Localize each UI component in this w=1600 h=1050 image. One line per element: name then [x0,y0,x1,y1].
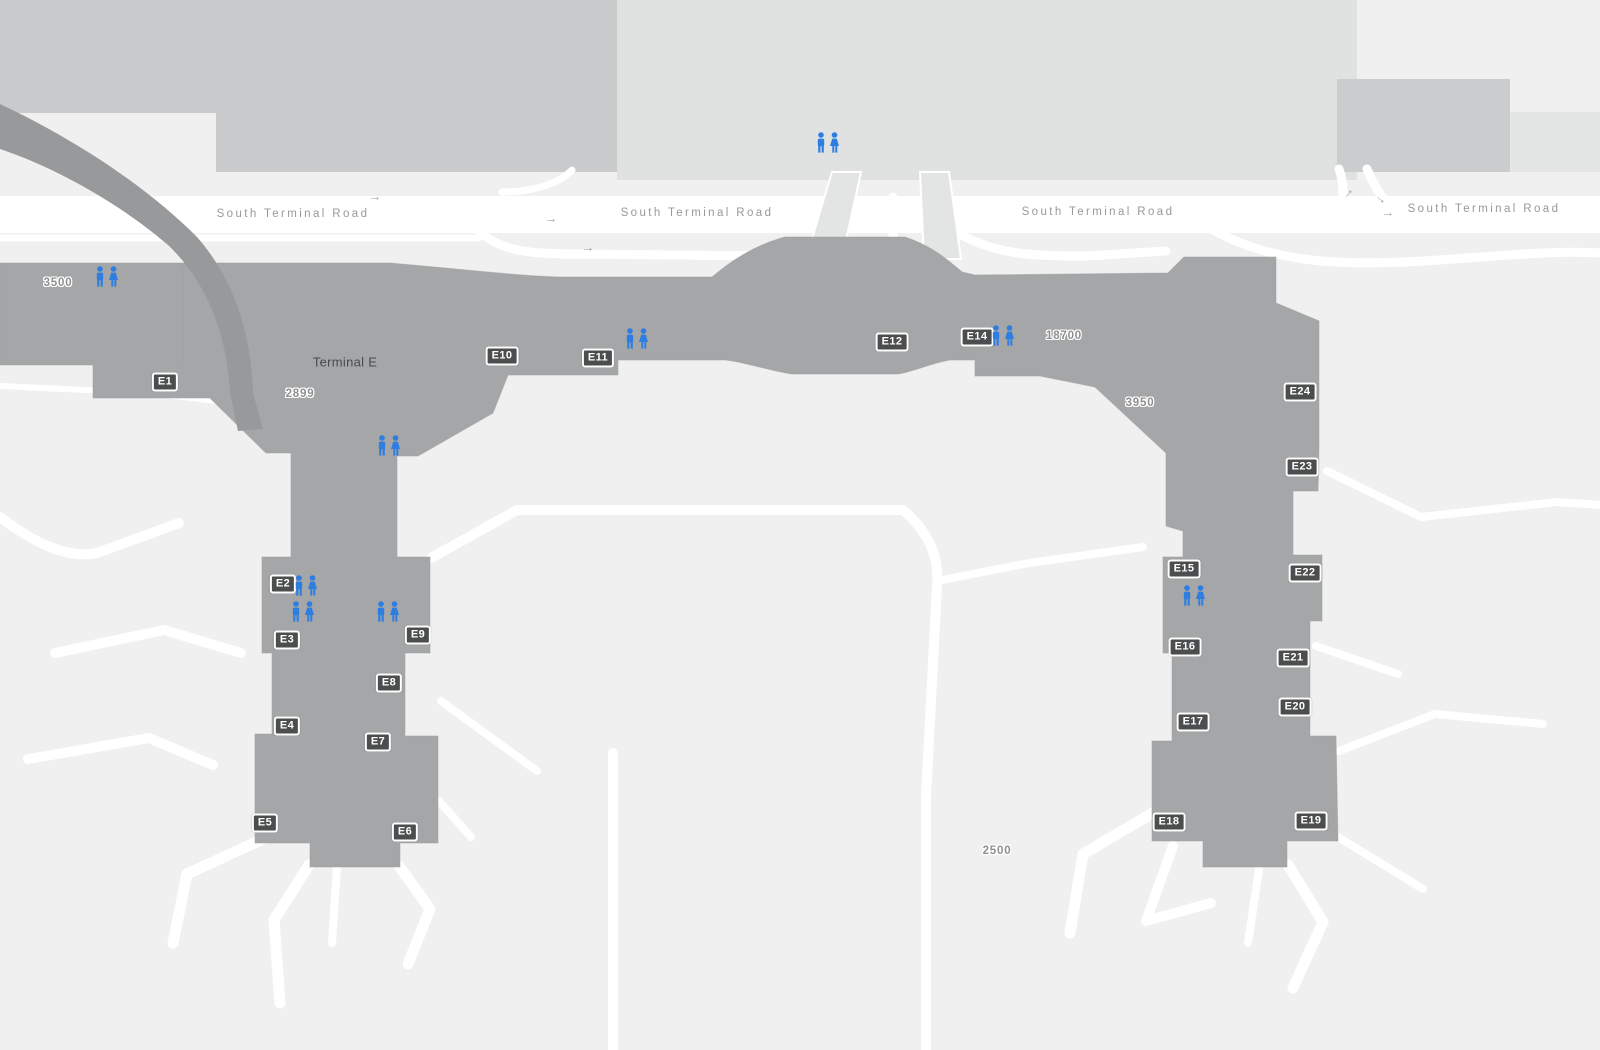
gate-badge-e20[interactable]: E20 [1279,698,1312,717]
building-far-east [1510,112,1600,172]
restroom-icon[interactable] [1179,584,1209,608]
gate-badge-e9[interactable]: E9 [405,626,431,645]
gate-badge-e11[interactable]: E11 [582,349,614,368]
gate-badge-e3[interactable]: E3 [274,631,300,650]
gate-badge-e24[interactable]: E24 [1284,383,1317,402]
gate-badge-e4[interactable]: E4 [274,717,300,736]
road-direction-arrow-icon: → [369,190,382,203]
area-number-label: 2500 [983,845,1012,857]
restroom-icon[interactable] [92,265,122,289]
gate-badge-e22[interactable]: E22 [1289,564,1322,583]
gate-badge-e18[interactable]: E18 [1153,813,1186,832]
airport-terminal-map [0,0,1600,1050]
gate-badge-e6[interactable]: E6 [392,823,418,842]
gate-badge-e16[interactable]: E16 [1169,638,1202,657]
road-direction-arrow-icon: → [582,241,595,254]
road-direction-arrow-icon: → [1382,206,1395,219]
road-name-label: South Terminal Road [1408,203,1561,215]
gate-badge-e12[interactable]: E12 [876,333,909,352]
male-figure [296,575,302,595]
female-figure [830,132,839,152]
male-figure [378,601,384,621]
female-figure [1196,585,1205,605]
gate-badge-e1[interactable]: E1 [152,373,178,392]
male-figure [293,601,299,621]
female-figure [305,601,314,621]
female-figure [308,575,317,595]
restroom-icon[interactable] [988,324,1018,348]
male-figure [627,328,633,348]
parking-structure-center [617,0,1357,180]
female-figure [391,435,400,455]
restroom-icon[interactable] [813,131,843,155]
area-number-label: 3950 [1126,397,1155,409]
road-name-label: South Terminal Road [1022,206,1175,218]
male-figure [818,132,824,152]
area-number-label: 2899 [286,388,315,400]
terminal-name-label: Terminal E [313,355,377,370]
area-number-label: 18700 [1046,330,1082,342]
road-direction-arrow-icon: → [545,212,558,225]
area-number-label: 3500 [44,277,73,289]
male-figure [993,325,999,345]
gate-badge-e15[interactable]: E15 [1168,560,1201,579]
gate-badge-e8[interactable]: E8 [376,674,402,693]
road-name-label: South Terminal Road [621,207,774,219]
road-name-label: South Terminal Road [217,208,370,220]
female-figure [639,328,648,348]
male-figure [379,435,385,455]
restroom-icon[interactable] [622,327,652,351]
gate-badge-e10[interactable]: E10 [486,347,519,366]
gate-badge-e21[interactable]: E21 [1277,649,1310,668]
male-figure [97,266,103,286]
female-figure [390,601,399,621]
female-figure [1005,325,1014,345]
restroom-icon[interactable] [373,600,403,624]
gate-badge-e23[interactable]: E23 [1286,458,1319,477]
gate-badge-e17[interactable]: E17 [1177,713,1210,732]
restroom-icon[interactable] [374,434,404,458]
gate-badge-e19[interactable]: E19 [1295,812,1328,831]
gate-badge-e7[interactable]: E7 [365,733,391,752]
male-figure [1184,585,1190,605]
female-figure [109,266,118,286]
gate-badge-e5[interactable]: E5 [252,814,278,833]
parking-structure-east [1337,79,1510,172]
restroom-icon[interactable] [288,600,318,624]
restroom-icon[interactable] [291,574,321,598]
